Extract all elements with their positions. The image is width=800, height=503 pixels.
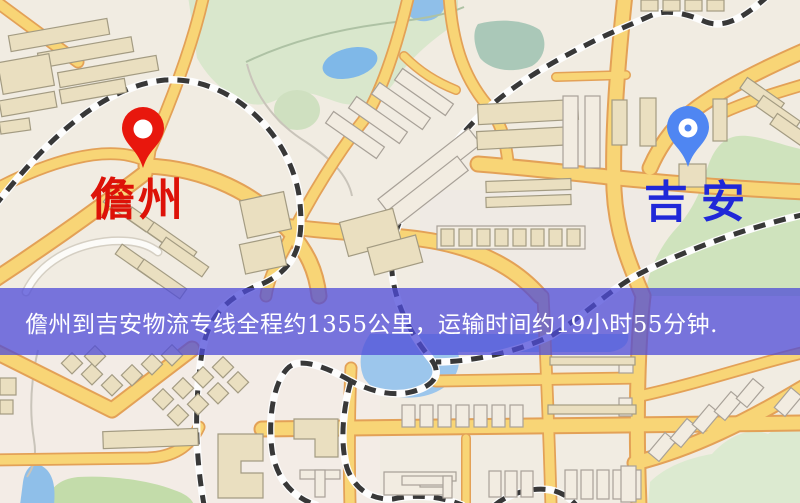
- map-screenshot: 儋州 吉安 儋州到吉安物流专线全程约1355公里，运输时间约19小时55分钟.: [0, 0, 800, 503]
- map-canvas: [0, 0, 800, 503]
- destination-pin-dot: [685, 125, 692, 132]
- origin-city-label: 儋州: [90, 177, 186, 222]
- route-info-text: 儋州到吉安物流专线全程约1355公里，运输时间约19小时55分钟.: [0, 305, 718, 339]
- route-info-banner: 儋州到吉安物流专线全程约1355公里，运输时间约19小时55分钟.: [0, 288, 800, 355]
- destination-city-label: 吉安: [644, 181, 758, 225]
- origin-pin-hole: [134, 120, 153, 139]
